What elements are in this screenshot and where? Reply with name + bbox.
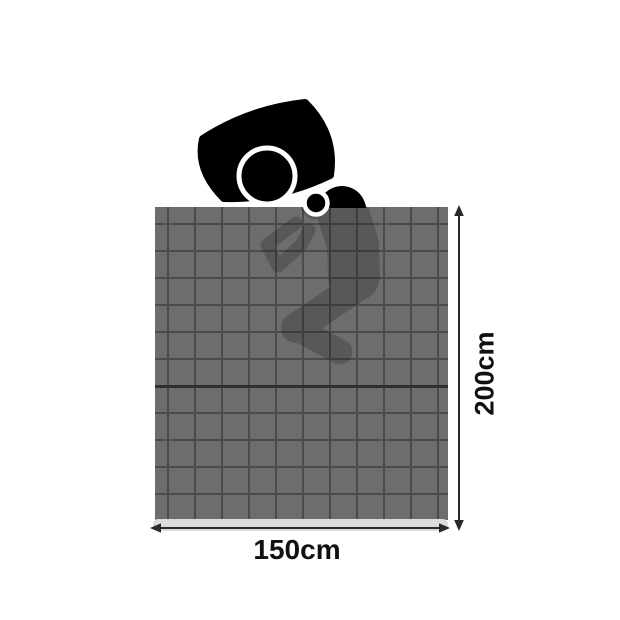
sleeping-person-body-silhouette [267,193,354,353]
width-dimension-label: 150cm [236,532,358,567]
height-dimension-label: 200cm [468,313,503,435]
vertical-double-arrow-icon [454,205,464,531]
figure-layer [0,0,620,620]
sleeping-person-head-icon [239,148,295,204]
bed-size-diagram: 200cm 150cm [0,0,620,620]
sleeping-person-shoulder-icon [305,192,328,215]
